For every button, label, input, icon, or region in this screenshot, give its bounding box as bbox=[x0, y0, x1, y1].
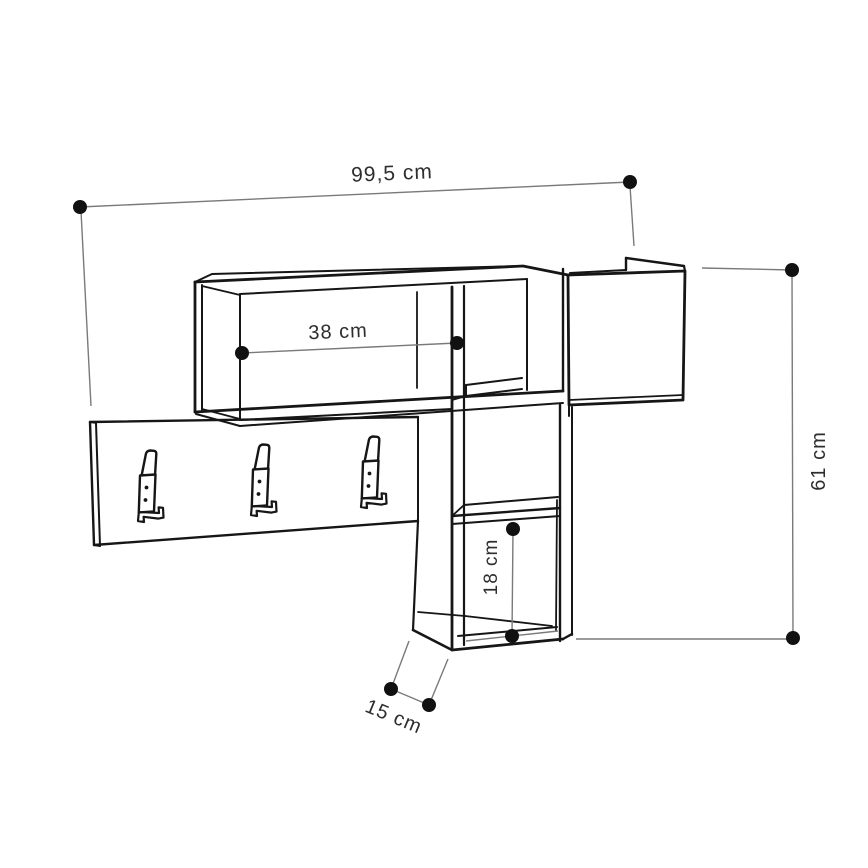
storage-box-front-face bbox=[568, 271, 685, 405]
column-bottom-left-edge bbox=[413, 630, 452, 650]
overall-height-label: 61 cm bbox=[808, 431, 830, 490]
depth-dimension: 15 cm bbox=[362, 641, 448, 738]
dimension-dot bbox=[505, 629, 519, 643]
depth-label: 15 cm bbox=[362, 695, 425, 738]
dimension-dot bbox=[235, 346, 249, 360]
dimension-dot bbox=[73, 200, 87, 214]
cube-height-label: 18 cm bbox=[481, 539, 502, 596]
overall-height-dimension: 61 cm bbox=[576, 263, 830, 645]
shelf-width-dimension: 38 cm bbox=[235, 320, 464, 360]
dimension-dot bbox=[786, 631, 800, 645]
overall-width-dimension: 99,5 cm bbox=[73, 160, 637, 406]
shelf-width-label: 38 cm bbox=[308, 320, 368, 345]
coat-rack-dimension-drawing: 99,5 cm 61 cm 38 cm 18 cm 15 cm bbox=[0, 0, 868, 868]
dimension-dot bbox=[422, 698, 436, 712]
coat-hook-icon bbox=[138, 451, 164, 523]
diagram-canvas: 99,5 cm 61 cm 38 cm 18 cm 15 cm bbox=[0, 0, 868, 868]
hook-panel-top-edge bbox=[90, 417, 418, 422]
storage-box bbox=[568, 258, 685, 416]
shelf-bottom-edge bbox=[195, 391, 563, 412]
coat-hook-icon bbox=[251, 445, 277, 517]
column-middle-shelf bbox=[452, 508, 560, 516]
hook-panel-bottom-edge bbox=[94, 521, 418, 545]
dimension-dot bbox=[623, 175, 637, 189]
dimension-dot bbox=[450, 336, 464, 350]
dimension-dot bbox=[384, 682, 398, 696]
overall-width-label: 99,5 cm bbox=[351, 160, 434, 187]
shelf-interior-top-edge bbox=[240, 279, 527, 294]
dimension-dot bbox=[506, 522, 520, 536]
dimension-dot bbox=[785, 263, 799, 277]
coat-hook-icon bbox=[361, 437, 387, 509]
storage-box-back-panel-edge bbox=[626, 258, 684, 266]
